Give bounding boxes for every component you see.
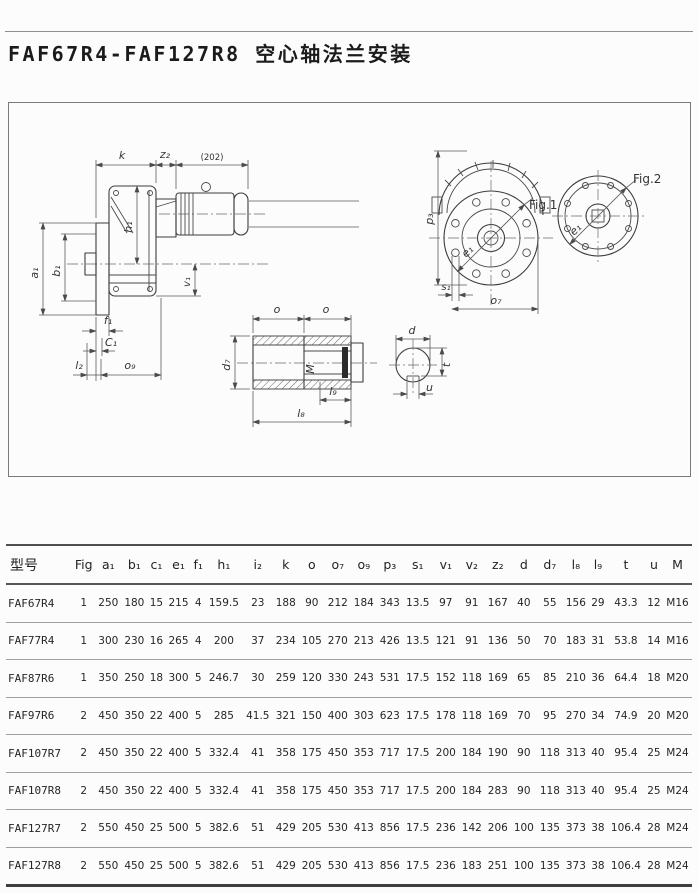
model-cell: FAF127R8 <box>6 847 72 886</box>
value-cell: 100 <box>511 847 537 886</box>
value-cell: 215 <box>165 584 191 622</box>
value-cell: 332.4 <box>205 772 243 810</box>
value-cell: 330 <box>325 660 351 698</box>
value-cell: 152 <box>433 660 459 698</box>
value-cell: 2 <box>72 697 95 735</box>
value-cell: 41.5 <box>243 697 273 735</box>
value-cell: 18 <box>147 660 165 698</box>
value-cell: 450 <box>121 847 147 886</box>
hollow-shaft-section: o o d₇ M l₉ l₈ <box>220 303 377 427</box>
value-cell: 530 <box>325 847 351 886</box>
value-cell: 13.5 <box>403 584 433 622</box>
value-cell: 243 <box>351 660 377 698</box>
value-cell: 358 <box>273 735 299 773</box>
value-cell: 400 <box>325 697 351 735</box>
value-cell: 90 <box>299 584 325 622</box>
value-cell: 184 <box>459 735 485 773</box>
value-cell: 31 <box>589 622 607 660</box>
column-header: b₁ <box>121 545 147 584</box>
value-cell: 43.3 <box>607 584 645 622</box>
value-cell: 313 <box>563 735 589 773</box>
value-cell: 53.8 <box>607 622 645 660</box>
value-cell: 17.5 <box>403 810 433 848</box>
value-cell: 717 <box>377 772 403 810</box>
value-cell: 90 <box>511 735 537 773</box>
dim-label-202: (202) <box>201 153 224 163</box>
value-cell: 29 <box>589 584 607 622</box>
value-cell: 382.6 <box>205 810 243 848</box>
value-cell: 18 <box>645 660 663 698</box>
value-cell: 16 <box>147 622 165 660</box>
value-cell: 213 <box>351 622 377 660</box>
value-cell: 91 <box>459 622 485 660</box>
column-header: f₁ <box>192 545 205 584</box>
value-cell: 550 <box>95 810 121 848</box>
value-cell: 188 <box>273 584 299 622</box>
value-cell: 17.5 <box>403 847 433 886</box>
value-cell: 236 <box>433 847 459 886</box>
value-cell: 167 <box>485 584 511 622</box>
value-cell: 5 <box>192 735 205 773</box>
value-cell: 373 <box>563 810 589 848</box>
value-cell: 85 <box>537 660 563 698</box>
column-header: v₁ <box>433 545 459 584</box>
value-cell: 200 <box>433 735 459 773</box>
model-cell: FAF107R8 <box>6 772 72 810</box>
column-header: M <box>663 545 692 584</box>
value-cell: 531 <box>377 660 403 698</box>
column-header: h₁ <box>205 545 243 584</box>
value-cell: 34 <box>589 697 607 735</box>
value-cell: 321 <box>273 697 299 735</box>
table-body: FAF67R41250180152154159.5231889021218434… <box>6 584 692 886</box>
value-cell: 450 <box>325 735 351 773</box>
value-cell: 105 <box>299 622 325 660</box>
value-cell: 40 <box>511 584 537 622</box>
value-cell: 283 <box>485 772 511 810</box>
table-row: FAF127R82550450255005382.651429205530413… <box>6 847 692 886</box>
value-cell: 2 <box>72 847 95 886</box>
value-cell: 12 <box>645 584 663 622</box>
dim-label-e1-fig2: e₁ <box>567 221 584 238</box>
value-cell: 413 <box>351 810 377 848</box>
value-cell: 25 <box>147 810 165 848</box>
fig1-label: Fig.1 <box>529 198 557 212</box>
value-cell: 350 <box>121 697 147 735</box>
flange-view-fig2: e₁ Fig.2 <box>552 170 661 262</box>
technical-drawing: k z₂ (202) a₁ b₁ h₁ v₁ f₁ C₁ l <box>9 103 690 476</box>
column-header: i₂ <box>243 545 273 584</box>
dim-label-o-right: o <box>323 303 330 316</box>
value-cell: 15 <box>147 584 165 622</box>
value-cell: 17.5 <box>403 697 433 735</box>
value-cell: 350 <box>121 735 147 773</box>
value-cell: 25 <box>645 772 663 810</box>
value-cell: 118 <box>537 735 563 773</box>
value-cell: 259 <box>273 660 299 698</box>
value-cell: 550 <box>95 847 121 886</box>
value-cell: 22 <box>147 772 165 810</box>
value-cell: 118 <box>459 697 485 735</box>
value-cell: 450 <box>95 735 121 773</box>
value-cell: M16 <box>663 584 692 622</box>
value-cell: 70 <box>537 622 563 660</box>
value-cell: 97 <box>433 584 459 622</box>
value-cell: 50 <box>511 622 537 660</box>
value-cell: 856 <box>377 847 403 886</box>
value-cell: 95.4 <box>607 772 645 810</box>
value-cell: 135 <box>537 847 563 886</box>
value-cell: 236 <box>433 810 459 848</box>
value-cell: 250 <box>95 584 121 622</box>
value-cell: 400 <box>165 697 191 735</box>
value-cell: 159.5 <box>205 584 243 622</box>
value-cell: 265 <box>165 622 191 660</box>
value-cell: 4 <box>192 584 205 622</box>
value-cell: 350 <box>95 660 121 698</box>
value-cell: 120 <box>299 660 325 698</box>
value-cell: 210 <box>563 660 589 698</box>
model-cell: FAF67R4 <box>6 584 72 622</box>
value-cell: 23 <box>243 584 273 622</box>
top-rule <box>5 31 693 32</box>
value-cell: 426 <box>377 622 403 660</box>
dim-label-b1: b₁ <box>50 265 63 276</box>
value-cell: 64.4 <box>607 660 645 698</box>
value-cell: 142 <box>459 810 485 848</box>
value-cell: 343 <box>377 584 403 622</box>
value-cell: 373 <box>563 847 589 886</box>
value-cell: 14 <box>645 622 663 660</box>
value-cell: 136 <box>485 622 511 660</box>
value-cell: 150 <box>299 697 325 735</box>
dim-label-l2: l₂ <box>75 359 83 372</box>
dim-label-a1: a₁ <box>28 267 41 278</box>
value-cell: 13.5 <box>403 622 433 660</box>
value-cell: 135 <box>537 810 563 848</box>
value-cell: 413 <box>351 847 377 886</box>
dim-label-p3: p₃ <box>423 213 436 226</box>
value-cell: 190 <box>485 735 511 773</box>
column-header: Fig <box>72 545 95 584</box>
column-header: d <box>511 545 537 584</box>
value-cell: 5 <box>192 810 205 848</box>
value-cell: 22 <box>147 735 165 773</box>
value-cell: 350 <box>121 772 147 810</box>
value-cell: 169 <box>485 660 511 698</box>
column-header: k <box>273 545 299 584</box>
dim-label-l8: l₈ <box>297 407 305 420</box>
front-view-fig1: e₁ Fig.1 p₃ s₁ o₇ <box>423 151 557 314</box>
table-header: 型号Figa₁b₁c₁e₁f₁h₁i₂koo₇o₉p₃s₁v₁v₂z₂dd₇l₈… <box>6 545 692 584</box>
value-cell: 270 <box>563 697 589 735</box>
value-cell: 106.4 <box>607 847 645 886</box>
dim-label-u: u <box>426 381 433 394</box>
value-cell: 178 <box>433 697 459 735</box>
dim-label-e1-fig1: e₁ <box>459 243 476 260</box>
value-cell: 5 <box>192 697 205 735</box>
value-cell: 118 <box>537 772 563 810</box>
value-cell: 41 <box>243 735 273 773</box>
page-title: FAF67R4-FAF127R8 空心轴法兰安装 <box>8 38 413 67</box>
column-header: e₁ <box>165 545 191 584</box>
value-cell: 90 <box>511 772 537 810</box>
column-header: l₉ <box>589 545 607 584</box>
value-cell: 38 <box>589 847 607 886</box>
dim-label-s1: s₁ <box>441 282 450 293</box>
value-cell: 74.9 <box>607 697 645 735</box>
table-row: FAF77R4130023016265420037234105270213426… <box>6 622 692 660</box>
table-row: FAF107R82450350224005332.441358175450353… <box>6 772 692 810</box>
value-cell: 300 <box>95 622 121 660</box>
model-cell: FAF77R4 <box>6 622 72 660</box>
column-header: o <box>299 545 325 584</box>
value-cell: 169 <box>485 697 511 735</box>
table-row: FAF67R41250180152154159.5231889021218434… <box>6 584 692 622</box>
model-cell: FAF127R7 <box>6 810 72 848</box>
dim-label-d7: d₇ <box>220 359 233 371</box>
dim-label-v1: v₁ <box>182 277 193 287</box>
value-cell: 17.5 <box>403 772 433 810</box>
value-cell: 30 <box>243 660 273 698</box>
value-cell: 4 <box>192 622 205 660</box>
dim-label-l9: l₉ <box>329 385 337 398</box>
column-header: v₂ <box>459 545 485 584</box>
value-cell: 28 <box>645 810 663 848</box>
value-cell: 856 <box>377 810 403 848</box>
column-header: z₂ <box>485 545 511 584</box>
value-cell: 303 <box>351 697 377 735</box>
value-cell: 183 <box>563 622 589 660</box>
value-cell: 65 <box>511 660 537 698</box>
value-cell: 70 <box>511 697 537 735</box>
value-cell: 2 <box>72 810 95 848</box>
value-cell: 230 <box>121 622 147 660</box>
value-cell: 206 <box>485 810 511 848</box>
value-cell: 270 <box>325 622 351 660</box>
value-cell: 623 <box>377 697 403 735</box>
table-header-row: 型号Figa₁b₁c₁e₁f₁h₁i₂koo₇o₉p₃s₁v₁v₂z₂dd₇l₈… <box>6 545 692 584</box>
value-cell: 40 <box>589 735 607 773</box>
value-cell: M24 <box>663 735 692 773</box>
shaft-cross-section: d t u <box>389 324 453 399</box>
value-cell: 55 <box>537 584 563 622</box>
value-cell: 500 <box>165 810 191 848</box>
value-cell: 313 <box>563 772 589 810</box>
dim-label-c1: C₁ <box>105 336 117 349</box>
value-cell: 332.4 <box>205 735 243 773</box>
table-row: FAF87R61350250183005246.7302591203302435… <box>6 660 692 698</box>
value-cell: 95 <box>537 697 563 735</box>
value-cell: 1 <box>72 584 95 622</box>
value-cell: 205 <box>299 810 325 848</box>
model-cell: FAF97R6 <box>6 697 72 735</box>
value-cell: 41 <box>243 772 273 810</box>
value-cell: 28 <box>645 847 663 886</box>
column-header: c₁ <box>147 545 165 584</box>
value-cell: 200 <box>433 772 459 810</box>
value-cell: 234 <box>273 622 299 660</box>
value-cell: M24 <box>663 847 692 886</box>
value-cell: 175 <box>299 772 325 810</box>
value-cell: 1 <box>72 660 95 698</box>
value-cell: M20 <box>663 697 692 735</box>
value-cell: 400 <box>165 772 191 810</box>
dimension-table: 型号Figa₁b₁c₁e₁f₁h₁i₂koo₇o₉p₃s₁v₁v₂z₂dd₇l₈… <box>6 544 692 887</box>
value-cell: 17.5 <box>403 735 433 773</box>
column-header: s₁ <box>403 545 433 584</box>
value-cell: 5 <box>192 847 205 886</box>
value-cell: 175 <box>299 735 325 773</box>
value-cell: M16 <box>663 622 692 660</box>
value-cell: 20 <box>645 697 663 735</box>
column-header: a₁ <box>95 545 121 584</box>
column-header: l₈ <box>563 545 589 584</box>
value-cell: 25 <box>147 847 165 886</box>
value-cell: 251 <box>485 847 511 886</box>
dim-label-o-left: o <box>274 303 281 316</box>
value-cell: 500 <box>165 847 191 886</box>
model-cell: FAF107R7 <box>6 735 72 773</box>
value-cell: M20 <box>663 660 692 698</box>
value-cell: 22 <box>147 697 165 735</box>
column-header: 型号 <box>6 545 72 584</box>
value-cell: 717 <box>377 735 403 773</box>
dim-label-h1: h₁ <box>122 221 135 232</box>
value-cell: 400 <box>165 735 191 773</box>
dim-label-z2: z₂ <box>159 148 171 161</box>
table-row: FAF107R72450350224005332.441358175450353… <box>6 735 692 773</box>
value-cell: 184 <box>351 584 377 622</box>
value-cell: 1 <box>72 622 95 660</box>
value-cell: 450 <box>95 697 121 735</box>
value-cell: 91 <box>459 584 485 622</box>
value-cell: 200 <box>205 622 243 660</box>
value-cell: 156 <box>563 584 589 622</box>
value-cell: 450 <box>325 772 351 810</box>
value-cell: 106.4 <box>607 810 645 848</box>
value-cell: 121 <box>433 622 459 660</box>
column-header: o₉ <box>351 545 377 584</box>
value-cell: 205 <box>299 847 325 886</box>
dim-label-d: d <box>409 324 417 337</box>
value-cell: 36 <box>589 660 607 698</box>
value-cell: M24 <box>663 772 692 810</box>
value-cell: 95.4 <box>607 735 645 773</box>
column-header: u <box>645 545 663 584</box>
value-cell: 429 <box>273 847 299 886</box>
value-cell: 353 <box>351 772 377 810</box>
table-row: FAF97R6245035022400528541.53211504003036… <box>6 697 692 735</box>
value-cell: 180 <box>121 584 147 622</box>
dim-label-f1: f₁ <box>104 314 112 327</box>
value-cell: 37 <box>243 622 273 660</box>
value-cell: 285 <box>205 697 243 735</box>
dim-label-m: M <box>304 364 317 374</box>
fig2-label: Fig.2 <box>633 172 661 186</box>
value-cell: 246.7 <box>205 660 243 698</box>
value-cell: 358 <box>273 772 299 810</box>
value-cell: 118 <box>459 660 485 698</box>
value-cell: 353 <box>351 735 377 773</box>
value-cell: 429 <box>273 810 299 848</box>
model-cell: FAF87R6 <box>6 660 72 698</box>
value-cell: 100 <box>511 810 537 848</box>
value-cell: 450 <box>121 810 147 848</box>
dim-label-o7: o₇ <box>490 294 502 307</box>
column-header: o₇ <box>325 545 351 584</box>
value-cell: 300 <box>165 660 191 698</box>
value-cell: 530 <box>325 810 351 848</box>
value-cell: 51 <box>243 847 273 886</box>
table-row: FAF127R72550450255005382.651429205530413… <box>6 810 692 848</box>
dim-label-o9: o₉ <box>124 359 136 372</box>
side-view: k z₂ (202) a₁ b₁ h₁ v₁ f₁ C₁ l <box>28 148 359 381</box>
value-cell: 5 <box>192 772 205 810</box>
value-cell: 25 <box>645 735 663 773</box>
value-cell: 382.6 <box>205 847 243 886</box>
value-cell: 212 <box>325 584 351 622</box>
technical-drawing-panel: k z₂ (202) a₁ b₁ h₁ v₁ f₁ C₁ l <box>8 102 691 477</box>
dim-label-k: k <box>119 149 126 162</box>
column-header: t <box>607 545 645 584</box>
column-header: d₇ <box>537 545 563 584</box>
value-cell: 38 <box>589 810 607 848</box>
value-cell: 17.5 <box>403 660 433 698</box>
value-cell: 2 <box>72 772 95 810</box>
value-cell: 450 <box>95 772 121 810</box>
column-header: p₃ <box>377 545 403 584</box>
value-cell: 2 <box>72 735 95 773</box>
value-cell: 184 <box>459 772 485 810</box>
value-cell: M24 <box>663 810 692 848</box>
value-cell: 40 <box>589 772 607 810</box>
dim-label-t: t <box>440 362 453 367</box>
value-cell: 250 <box>121 660 147 698</box>
value-cell: 5 <box>192 660 205 698</box>
value-cell: 183 <box>459 847 485 886</box>
value-cell: 51 <box>243 810 273 848</box>
